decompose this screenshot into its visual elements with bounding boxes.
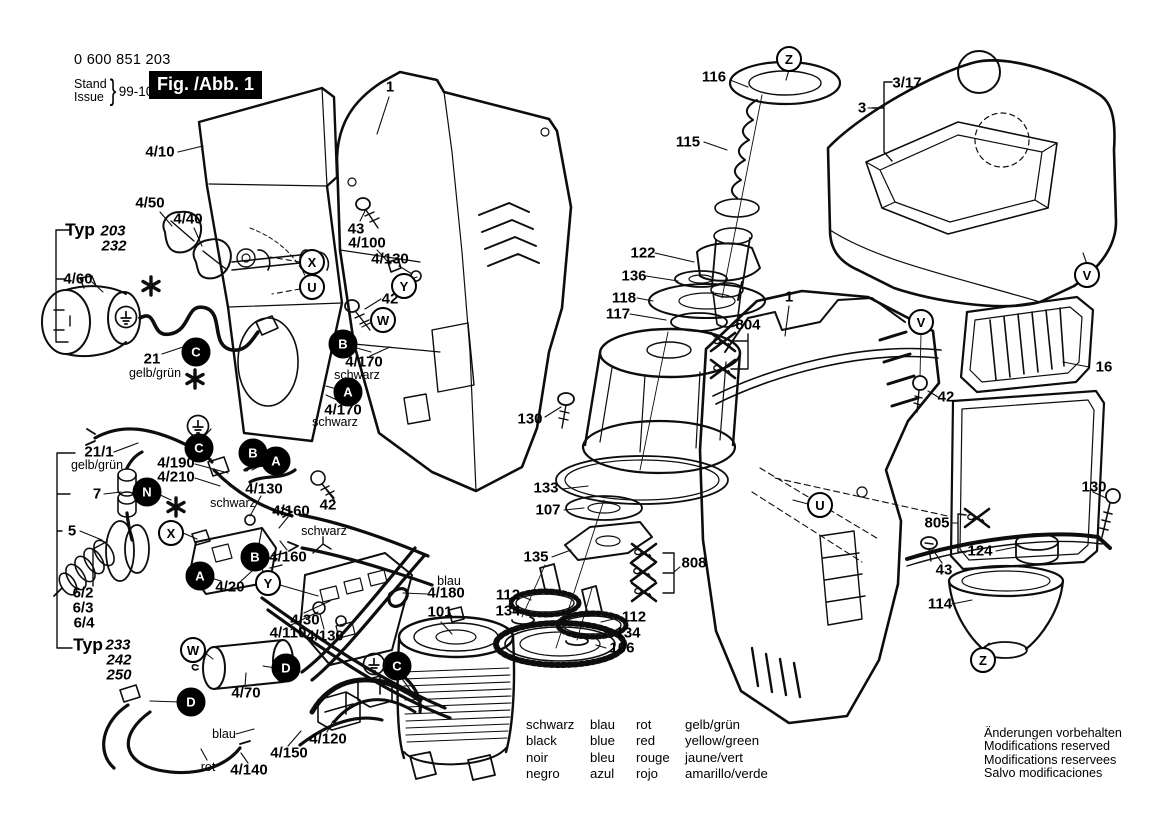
legend-cell: blau [590,718,634,732]
grate [961,297,1093,392]
marker-y: Y [391,273,417,299]
legend-row-0: schwarzblaurotgelb/grün [526,718,768,732]
stand-label: Stand [74,78,107,92]
legend-cell: red [636,734,683,748]
part-label-804: 804 [735,318,760,333]
part-label-gelb-grün: gelb/grün [71,459,123,472]
legend-cell: bleu [590,751,634,765]
part-label-135: 135 [523,550,548,565]
part-label-4-10: 4/10 [145,145,174,160]
marker-v: V [1074,262,1100,288]
part-label-4-40: 4/40 [173,212,202,227]
part-label-3: 3 [858,101,866,116]
part-label-1: 1 [386,80,394,95]
part-label-6-4: 6/4 [74,616,95,631]
part-label-4-160: 4/160 [272,504,310,519]
part-label-rot: rot [201,761,216,774]
ground-icon [114,305,138,329]
part-label-115: 115 [676,135,700,150]
part-label-schwarz: schwarz [301,525,347,538]
part-label-4-120: 4/120 [309,732,347,747]
part-label-808: 808 [681,556,706,571]
brace-glyph: } [109,74,116,108]
part-label-112: 112 [622,610,646,625]
part-label-118: 118 [612,291,636,306]
part-label-4-210: 4/210 [157,470,195,485]
legend-cell: negro [526,767,588,781]
marker-w: W [370,307,396,333]
crossed-screw-icon [709,330,737,354]
part-label-233: 233 [105,638,130,653]
part-label-gelb-grün: gelb/grün [129,367,181,380]
part-label-4-20: 4/20 [215,580,244,595]
part-label-6-2: 6/2 [73,586,94,601]
marker-x: X [158,520,184,546]
part-label-typ: Typ [73,636,103,654]
part-label-4-110: 4/110 [270,626,307,641]
marker-z: Z [776,46,802,72]
part-label-242: 242 [106,653,131,668]
part-label-4-100: 4/100 [348,236,386,251]
marker-b-filled: B [241,543,270,572]
legend-row-3: negroazulrojoamarillo/verde [526,767,768,781]
marker-a-filled: A [334,378,363,407]
legend-row-2: noirbleurougejaune/vert [526,751,768,765]
part-label-117: 117 [606,307,630,322]
part-label-6-3: 6/3 [73,601,94,616]
marker-x: X [299,249,325,275]
part-label-4-180: 4/180 [427,586,465,601]
modifications-notice: Änderungen vorbehaltenModifications rese… [984,727,1122,781]
legend-cell: jaune/vert [685,751,768,765]
feed-screw [711,62,840,327]
star-icon [165,496,187,518]
star-icon [184,368,206,390]
color-legend: schwarzblaurotgelb/grünblackblueredyello… [524,716,770,783]
marker-c-filled: C [182,338,211,367]
notice-line: Salvo modificaciones [984,767,1122,780]
part-label-1: 1 [785,290,793,305]
part-label-21: 21 [144,352,161,367]
star-icon [140,275,162,297]
part-label-232: 232 [101,239,126,254]
marker-c-filled: C [383,652,412,681]
notice-line: Modifications reservees [984,754,1122,767]
part-label-250: 250 [106,668,131,683]
part-label-4-150: 4/150 [270,746,308,761]
figure-label: Fig. /Abb. 1 [149,71,262,99]
part-label-schwarz: schwarz [312,416,358,429]
part-label-114: 114 [928,597,952,612]
ground-icon [362,652,386,676]
marker-z: Z [970,647,996,673]
part-label-130: 130 [1081,480,1106,495]
ground-icon [186,414,210,438]
legend-cell: amarillo/verde [685,767,768,781]
part-label-7: 7 [93,487,101,502]
part-label-4-50: 4/50 [135,196,164,211]
part-label-4-130: 4/130 [306,629,344,644]
crossed-screw-icon [630,580,658,604]
part-label-112: 112 [496,588,520,603]
marker-a-filled: A [186,562,215,591]
part-label-blau: blau [212,728,236,741]
marker-v: V [908,309,934,335]
legend-cell: yellow/green [685,734,768,748]
part-label-134: 134 [615,626,640,641]
part-label-116: 116 [702,70,726,85]
part-label-43: 43 [936,563,953,578]
legend-cell: blue [590,734,634,748]
legend-cell: azul [590,767,634,781]
legend-cell: black [526,734,588,748]
legend-row-1: blackblueredyellow/green [526,734,768,748]
part-label-133: 133 [533,481,558,496]
legend-cell: rot [636,718,683,732]
marker-u: U [807,492,833,518]
part-label-4-60: 4/60 [63,272,92,287]
part-label-4-70: 4/70 [231,686,260,701]
part-label-122: 122 [630,246,655,261]
marker-d-filled: D [177,688,206,717]
diagram-line-art [0,0,1168,826]
crossed-screw-icon [963,506,991,530]
crossed-screw-icon [709,357,737,381]
left-housing [337,72,571,491]
marker-w: W [180,637,206,663]
part-label-typ: Typ [65,221,95,239]
marker-u: U [299,274,325,300]
part-label-106: 106 [609,641,634,656]
part-label-4-160: 4/160 [269,550,307,565]
legend-cell: schwarz [526,718,588,732]
legend-cell: gelb/grün [685,718,768,732]
part-label-3-17: 3/17 [892,76,921,91]
part-label-134: 134 [495,604,520,619]
marker-n-filled: N [133,478,162,507]
part-label-schwarz: schwarz [210,497,256,510]
part-label-130: 130 [517,412,542,427]
notice-line: Änderungen vorbehalten [984,727,1122,740]
marker-y: Y [255,570,281,596]
marker-a-filled: A [262,447,291,476]
marker-d-filled: D [272,654,301,683]
part-label-124: 124 [967,544,992,559]
part-label-203: 203 [100,224,125,239]
parts-diagram-page: 0 600 851 203 Stand Issue } 99-10-07 Fig… [0,0,1168,826]
part-label-42: 42 [938,390,955,405]
part-label-136: 136 [621,269,646,284]
legend-cell: rouge [636,751,683,765]
notice-line: Modifications reserved [984,740,1122,753]
issue-label: Issue [74,91,107,105]
part-label-42: 42 [320,498,337,513]
part-label-805: 805 [924,516,949,531]
hopper [828,51,1116,306]
part-label-16: 16 [1096,360,1113,375]
marker-b-filled: B [329,330,358,359]
part-label-4-130: 4/130 [371,252,409,267]
part-label-4-140: 4/140 [230,763,268,778]
part-label-107: 107 [535,503,560,518]
part-label-101: 101 [427,605,452,620]
part-number: 0 600 851 203 [74,52,173,68]
part-label-5: 5 [68,524,76,539]
legend-cell: rojo [636,767,683,781]
part-label-4-130: 4/130 [245,482,283,497]
legend-cell: noir [526,751,588,765]
